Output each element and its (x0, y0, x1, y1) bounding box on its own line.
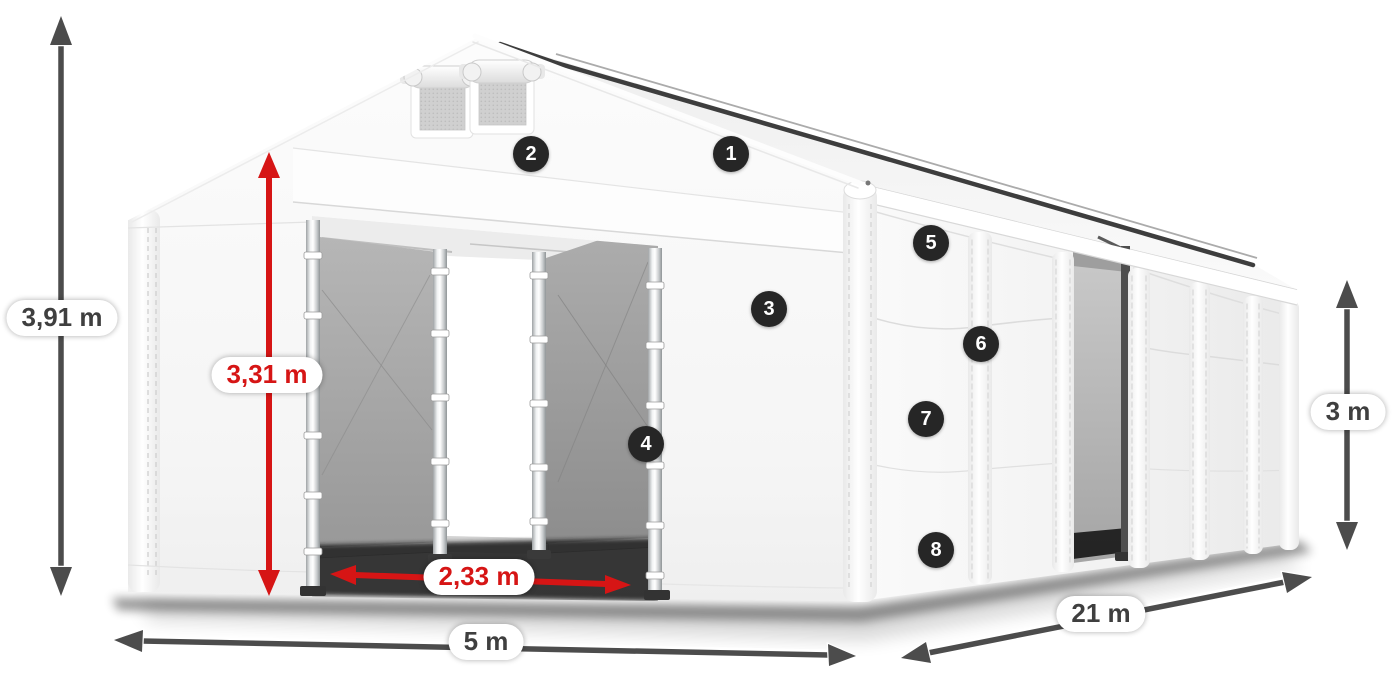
dim-label-total-height: 3,91 m (7, 300, 118, 336)
inner-tarp-right (546, 220, 658, 553)
marker-1-roof: 1 (713, 136, 749, 172)
marker-2-gable-beam: 2 (513, 136, 549, 172)
dim-label-length: 21 m (1056, 596, 1145, 632)
dim-label-wall-height: 3 m (1311, 394, 1386, 430)
tent-illustration (0, 0, 1400, 700)
dim-label-door-width: 2,33 m (424, 559, 535, 595)
entrance-interior (312, 216, 658, 601)
marker-7-side-lower: 7 (908, 401, 944, 437)
tent-dimension-diagram: 3,91 m 3,31 m 2,33 m 5 m 21 m 3 m 1 2 3 … (0, 0, 1400, 700)
side-door-opening (1073, 237, 1137, 563)
marker-5-side-top: 5 (913, 225, 949, 261)
dim-label-inner-height: 3,31 m (212, 357, 323, 393)
marker-4-entrance: 4 (628, 426, 664, 462)
door-post-left (306, 220, 320, 594)
marker-3-front-wall: 3 (751, 291, 787, 327)
vent-window-right (459, 60, 545, 134)
dim-label-width: 5 m (449, 624, 524, 660)
marker-6-side-mid: 6 (963, 326, 999, 362)
see-through-gap (447, 256, 538, 538)
door-post-right (648, 248, 662, 598)
marker-8-side-bottom: 8 (918, 532, 954, 568)
inner-tarp-left (312, 236, 437, 558)
